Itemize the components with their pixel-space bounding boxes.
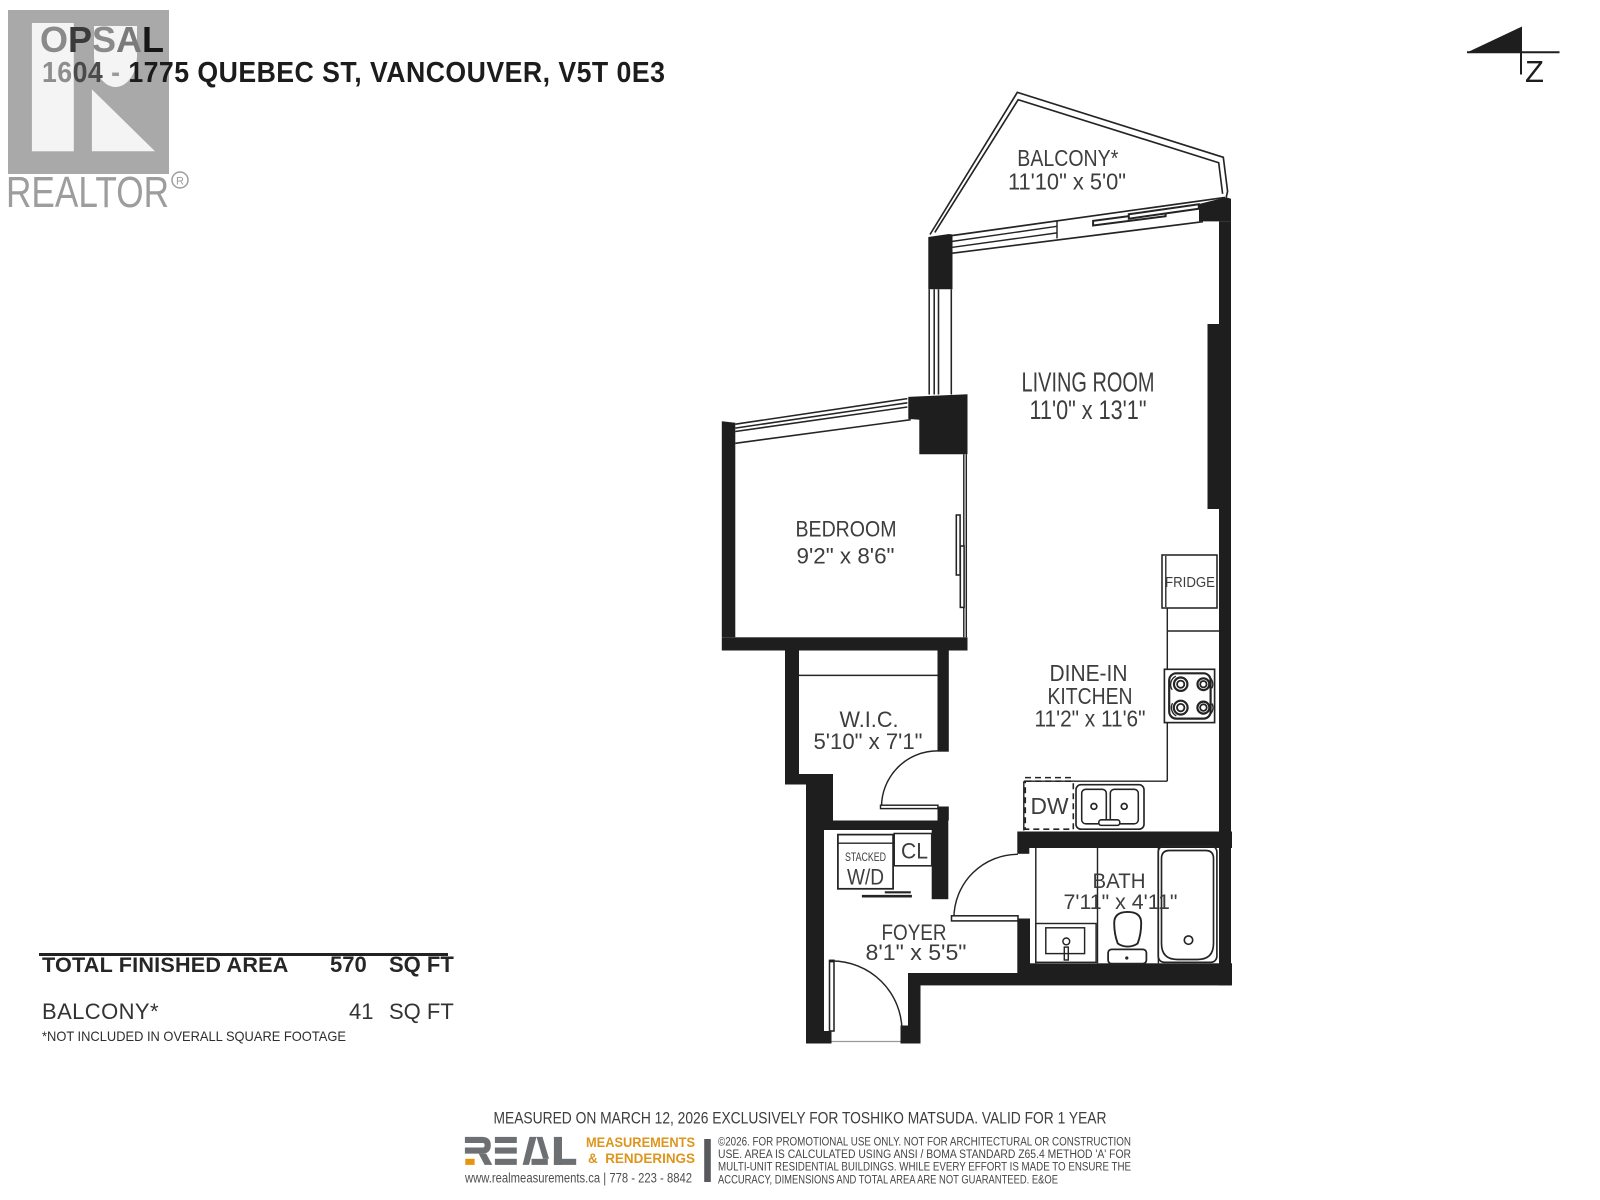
svg-text:BALCONY*: BALCONY* (1017, 145, 1118, 171)
svg-text:LIVING ROOM: LIVING ROOM (1022, 367, 1155, 398)
svg-text:CL: CL (901, 839, 928, 864)
svg-text:DW: DW (1031, 793, 1069, 819)
svg-text:STACKED: STACKED (845, 852, 886, 864)
svg-text:MEASUREMENTS: MEASUREMENTS (586, 1135, 695, 1150)
svg-text:USE. AREA IS CALCULATED USING: USE. AREA IS CALCULATED USING ANSI / BOM… (718, 1149, 1131, 1161)
svg-text:BEDROOM: BEDROOM (796, 517, 897, 542)
svg-text:11'2" x 11'6": 11'2" x 11'6" (1035, 706, 1146, 732)
svg-text:9'2" x 8'6": 9'2" x 8'6" (797, 544, 895, 569)
svg-text:MULTI-UNIT RESIDENTIAL BUILDIN: MULTI-UNIT RESIDENTIAL BUILDINGS. WHILE … (718, 1162, 1131, 1174)
svg-text:www.realmeasurements.ca | 778: www.realmeasurements.ca | 778 - 223 - 88… (464, 1171, 692, 1186)
svg-text:BATH: BATH (1093, 870, 1146, 893)
svg-text:5'10" x 7'1": 5'10" x 7'1" (814, 729, 923, 754)
svg-text:7'11" x 4'11": 7'11" x 4'11" (1064, 891, 1178, 914)
svg-text:11'10" x 5'0": 11'10" x 5'0" (1008, 169, 1126, 195)
svg-text:Z: Z (1525, 54, 1544, 89)
svg-text:ACCURACY, DIMENSIONS AND TOTAL: ACCURACY, DIMENSIONS AND TOTAL AREA ARE … (718, 1174, 1058, 1186)
svg-text:& RENDERINGS: & RENDERINGS (588, 1151, 695, 1166)
svg-text:REALTOR: REALTOR (6, 168, 169, 217)
svg-text:11'0" x 13'1": 11'0" x 13'1" (1030, 395, 1147, 425)
svg-text:8'1" x 5'5": 8'1" x 5'5" (866, 940, 967, 965)
svg-text:MEASURED ON MARCH 12, 2026 EXC: MEASURED ON MARCH 12, 2026 EXCLUSIVELY F… (494, 1109, 1107, 1128)
svg-text:©2026. FOR PROMOTIONAL USE ONL: ©2026. FOR PROMOTIONAL USE ONLY. NOT FOR… (718, 1136, 1131, 1148)
svg-text:FRIDGE: FRIDGE (1165, 574, 1215, 591)
svg-text:R: R (176, 176, 184, 188)
svg-text:W/D: W/D (847, 865, 884, 890)
